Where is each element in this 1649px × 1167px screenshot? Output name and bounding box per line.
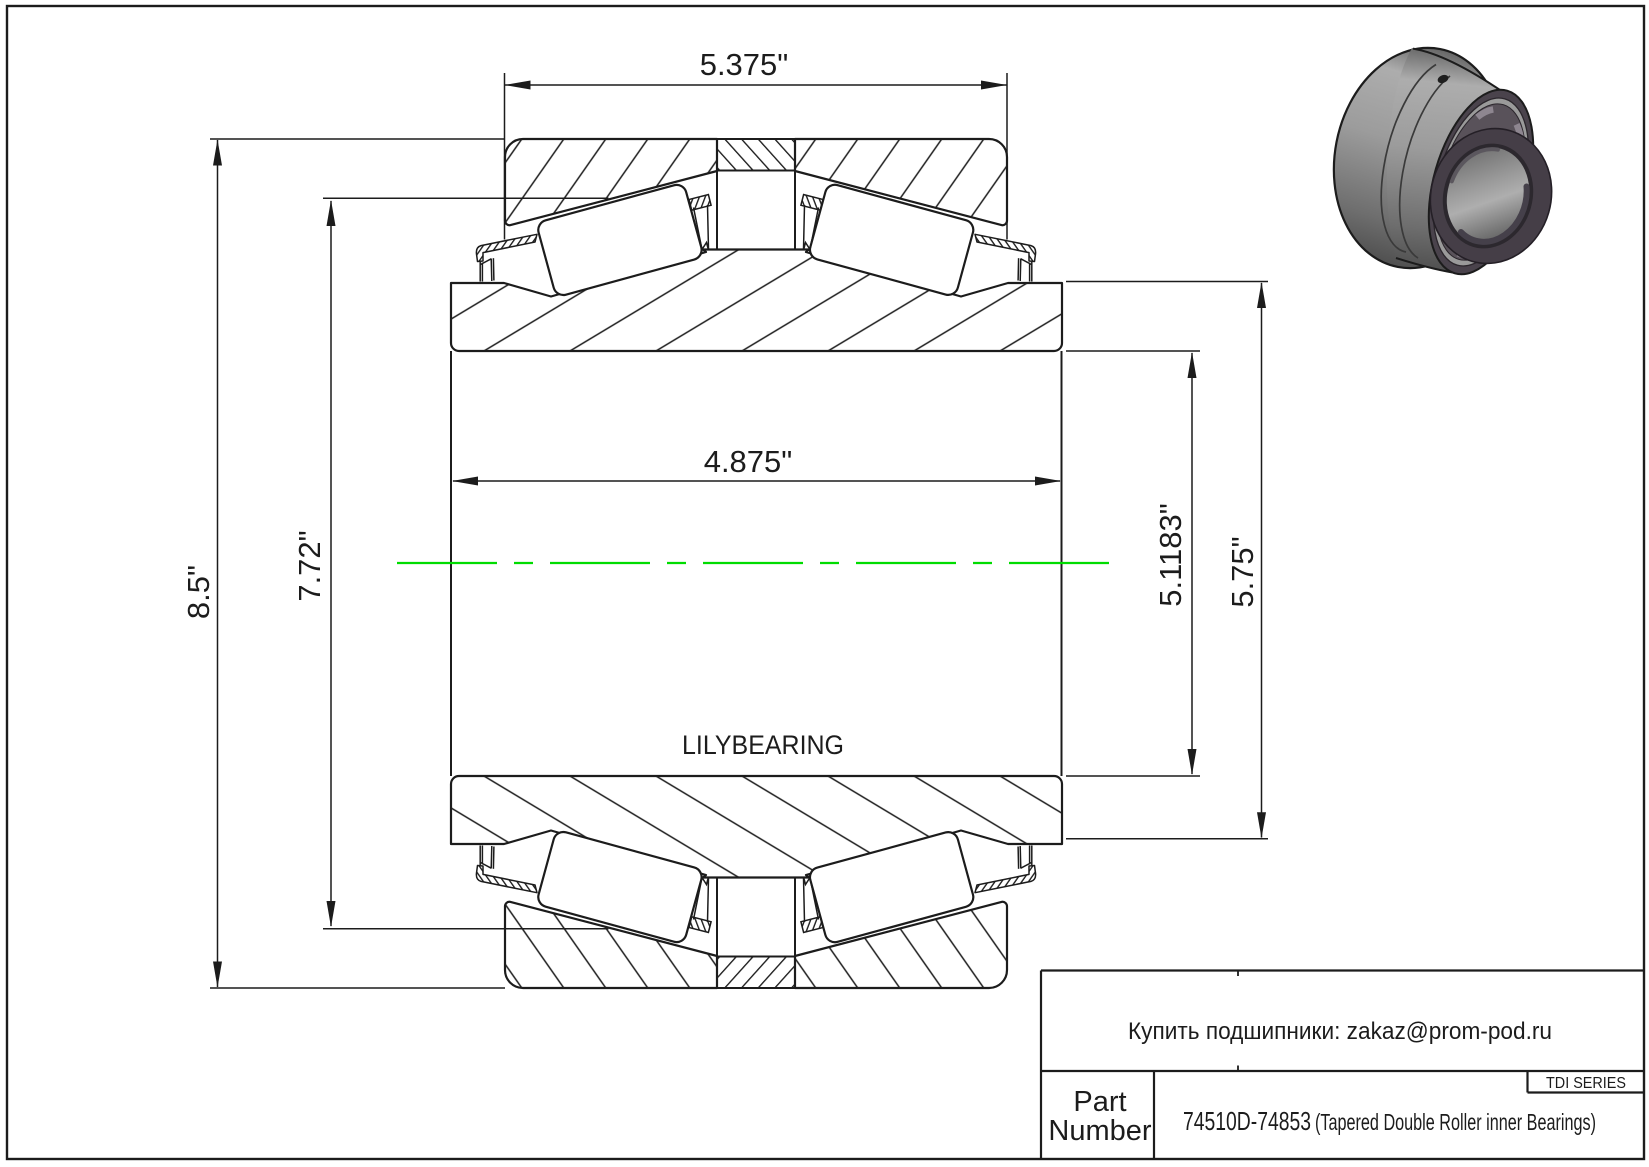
svg-text:8.5": 8.5": [181, 565, 216, 619]
svg-text:TDI SERIES: TDI SERIES: [1546, 1075, 1626, 1092]
svg-text:Part: Part: [1073, 1086, 1126, 1118]
svg-text:5.75": 5.75": [1225, 536, 1260, 607]
svg-text:Купить подшипники: zakaz@prom-: Купить подшипники: zakaz@prom-pod.ru: [1128, 1018, 1552, 1045]
svg-text:LILYBEARING: LILYBEARING: [682, 730, 844, 760]
svg-text:7.72": 7.72": [292, 530, 327, 601]
svg-text:(Tapered Double Roller inner B: (Tapered Double Roller inner Bearings): [1315, 1109, 1596, 1135]
svg-text:5.1183": 5.1183": [1153, 503, 1188, 607]
svg-text:74510D-74853: 74510D-74853: [1183, 1108, 1311, 1136]
svg-text:4.875": 4.875": [704, 444, 793, 479]
svg-text:Number: Number: [1048, 1115, 1151, 1147]
svg-text:5.375": 5.375": [700, 47, 789, 82]
